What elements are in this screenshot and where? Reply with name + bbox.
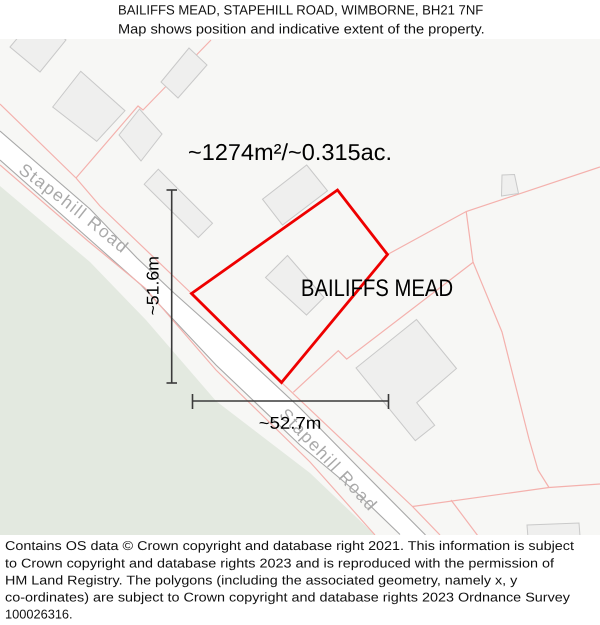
svg-text:Map shows position and indicat: Map shows position and indicative extent… [118,21,485,36]
svg-text:to Crown copyright and databas: to Crown copyright and database rights 2… [5,556,554,571]
svg-text:co-ordinates) are subject to C: co-ordinates) are subject to Crown copyr… [5,589,571,604]
svg-text:100026316.: 100026316. [5,607,73,622]
svg-text:HM Land Registry. The polygons: HM Land Registry. The polygons (includin… [5,572,518,587]
svg-text:BAILIFFS MEAD, STAPEHILL ROAD,: BAILIFFS MEAD, STAPEHILL ROAD, WIMBORNE,… [118,3,483,18]
svg-text:Contains OS data © Crown copyr: Contains OS data © Crown copyright and d… [5,538,574,553]
